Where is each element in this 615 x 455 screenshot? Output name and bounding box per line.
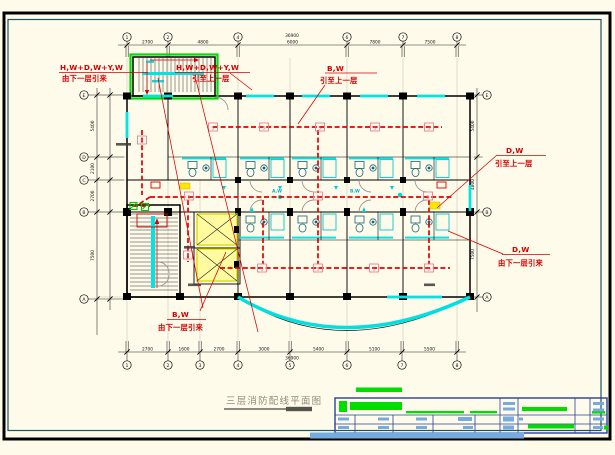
bottom-blue-bar	[310, 433, 524, 439]
dim-text: 5400	[470, 120, 476, 131]
wire-label-aw: A,W	[272, 189, 282, 195]
dim-text: 4800	[198, 40, 209, 46]
smoke-detector: S	[261, 266, 264, 272]
dim-text: 2700	[142, 40, 153, 46]
dim-text: 2700	[90, 190, 96, 201]
grid-bubble-label: 5	[289, 363, 292, 369]
smoke-detector: S	[428, 266, 431, 272]
smoke-detector: S	[141, 138, 144, 144]
grid-bubble-label: 7	[401, 363, 404, 369]
smoke-detector: S	[319, 125, 322, 131]
grid-bubble-label: 6	[346, 363, 349, 369]
smoke-detector: S	[212, 125, 215, 131]
grid-bubble-label: B	[82, 210, 85, 216]
grid-bubble-label: 2	[167, 363, 170, 369]
smoke-detector: S	[263, 125, 266, 131]
smoke-detector: S	[373, 266, 376, 272]
dim-text: 2100	[90, 163, 96, 174]
annotation-line: H,W+D,W+Y,W	[176, 63, 239, 72]
grid-bubble-label: E	[83, 93, 86, 99]
dim-total-bottom: 36900	[285, 355, 299, 361]
smoke-detector: S	[187, 253, 190, 259]
dim-text: 1600	[179, 346, 190, 352]
grid-bubble-label: 7	[402, 35, 405, 41]
grid-bubble-label: 1	[126, 35, 129, 41]
grid-bubble-label: E	[486, 93, 489, 99]
dim-text: 2700	[214, 346, 225, 352]
smoke-detector: S	[428, 125, 431, 131]
annotation-line: B,W	[172, 310, 189, 319]
smoke-detector: S	[374, 125, 377, 131]
grid-bubble-label: D	[82, 155, 86, 161]
smoke-detector: S	[317, 266, 320, 272]
annotation-line: D,W	[512, 245, 529, 254]
cad-drawing-sheet: 2700 4800 6000 7800 7500 36900 1 2 4 6 7…	[0, 0, 615, 455]
dim-text: 7500	[470, 249, 476, 260]
dim-text: 5500	[424, 346, 435, 352]
dim-text: 7500	[425, 40, 436, 46]
annotation-line: 引至上一层	[320, 76, 358, 85]
smoke-detector: S	[427, 194, 430, 200]
smoke-detector: S	[317, 194, 320, 200]
highlight-mark	[180, 183, 190, 189]
dim-text: 3000	[259, 346, 270, 352]
grid-bubble-label: B	[485, 210, 488, 216]
highlight-mark	[430, 202, 440, 209]
drawing-title: 三层消防配线平面图	[224, 395, 322, 411]
dim-total-top: 36900	[285, 33, 299, 39]
dim-text: 6000	[287, 40, 298, 46]
grid-bubble-label: 3	[199, 363, 202, 369]
revision-bar	[356, 388, 402, 393]
grid-bubble-label: C	[82, 178, 85, 184]
smoke-detector: S	[188, 194, 191, 200]
annotation-line: 引至上一层	[495, 159, 533, 168]
annotation-line: 由下一层引来	[498, 259, 543, 268]
grid-bubble-label: 4	[237, 363, 240, 369]
floor-plan-canvas: 2700 4800 6000 7800 7500 36900 1 2 4 6 7…	[0, 0, 615, 455]
annotation-line: 由下一层引来	[158, 323, 203, 332]
grid-bubble-label: 6	[346, 35, 349, 41]
dim-text: 5100	[369, 346, 380, 352]
dim-text: 2700	[142, 346, 153, 352]
drawing-title-text: 三层消防配线平面图	[226, 395, 322, 407]
dim-text: 7800	[370, 40, 381, 46]
annotation-line: D,W	[506, 146, 523, 155]
annotation-line: 由下一层引来	[62, 74, 107, 83]
grid-bubble-label: 1	[126, 363, 129, 369]
dim-text: 5400	[90, 120, 96, 131]
dim-text: 5400	[313, 346, 324, 352]
grid-bubble-label: 2	[167, 35, 170, 41]
wire-label-bw: B,W	[350, 189, 360, 195]
grid-bubble-label: 8	[456, 363, 459, 369]
grid-bubble-label: 8	[456, 35, 459, 41]
annotation-line: 引至上一层	[192, 74, 230, 83]
annotation-line: B,W	[327, 64, 344, 73]
annotation-line: H,W+D,W+Y,W	[60, 63, 123, 72]
grid-bubble-label: 4	[237, 35, 240, 41]
dim-text: 7500	[90, 250, 96, 261]
